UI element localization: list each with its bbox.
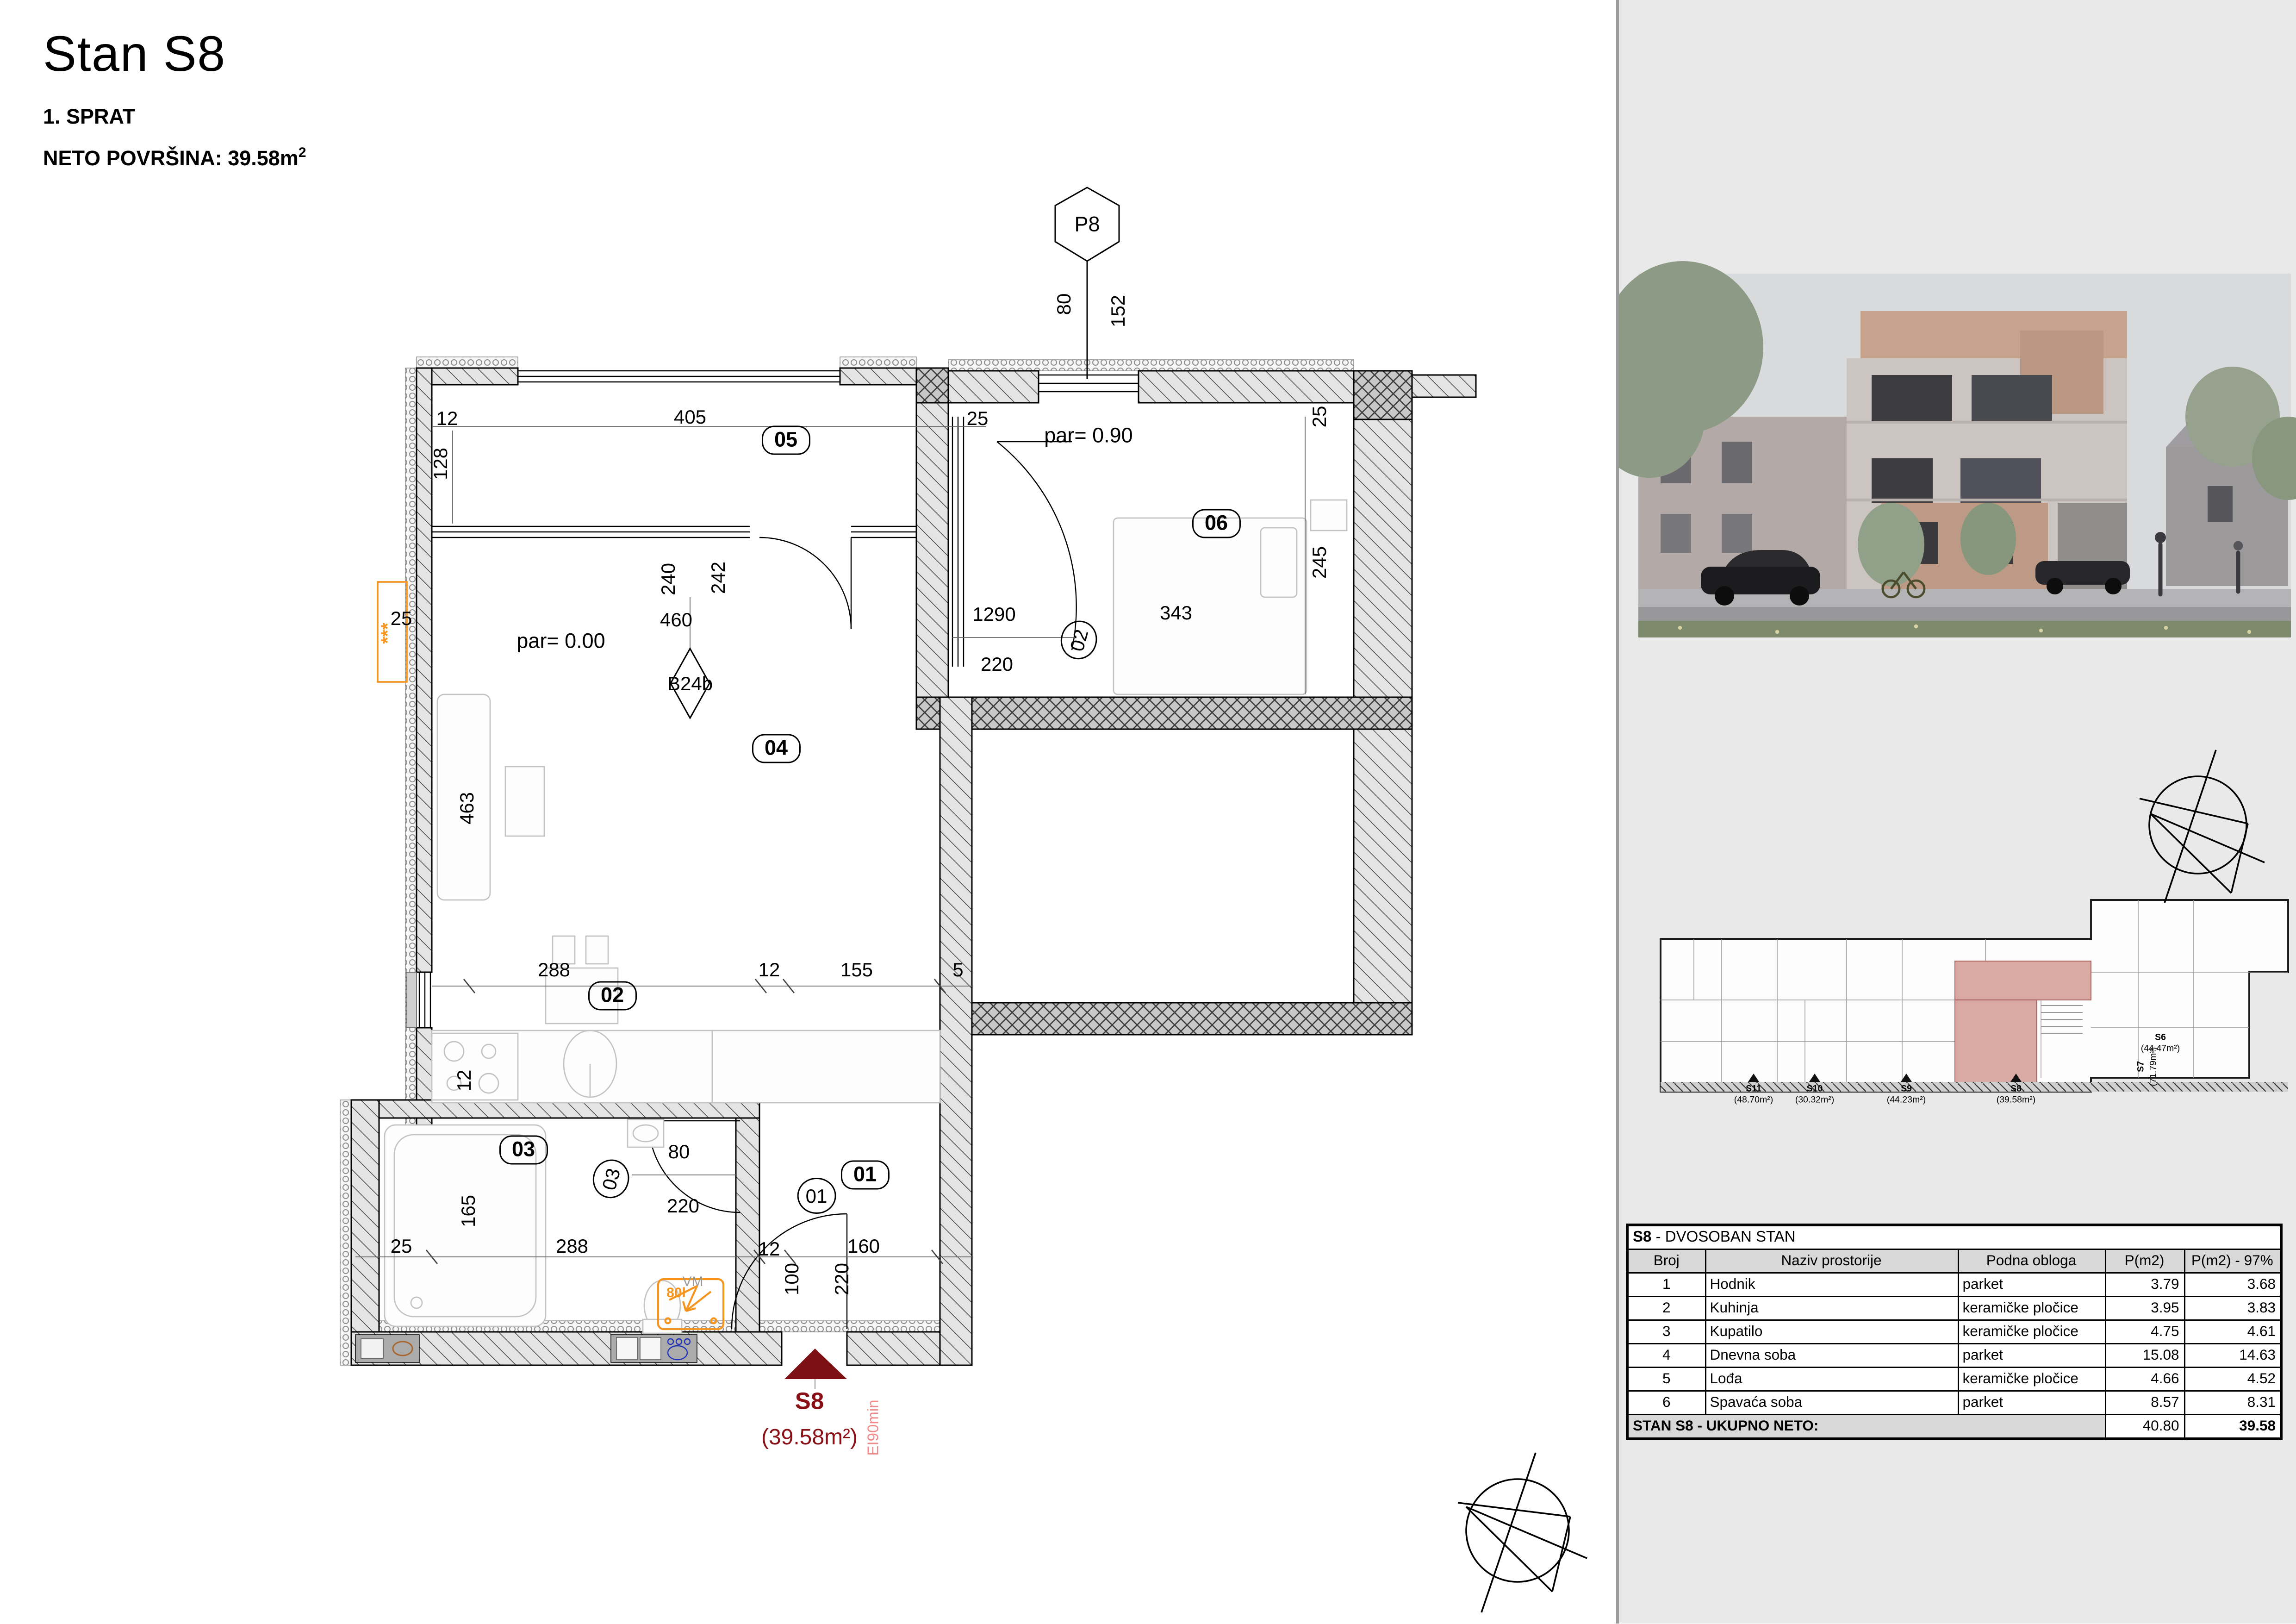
plan-label: S10 [1807,1086,1823,1095]
plan-label: par= 0.90 [1044,426,1132,447]
plan-label: 405 [674,407,706,426]
plan-label: S8 [795,1390,824,1413]
plan-label: VM [683,1276,703,1290]
room-tag: 04 [752,734,800,763]
plan-label: 288 [538,960,570,979]
plan-label: 242 [708,562,728,594]
plan-label: par= 0.00 [516,631,605,652]
plan-label: (44.23m²) [1887,1097,1926,1106]
plan-label: 460 [660,610,692,629]
plan-label: S7 [2138,1061,2147,1072]
plan-label: 12 [436,408,458,428]
plan-label: (39.58m²) [1997,1097,2036,1106]
plan-label: S8 [2010,1086,2022,1095]
plan-label: 463 [457,792,476,824]
room-tag: 03 [499,1136,548,1165]
plan-label: 25 [967,408,989,428]
room-tag: 02 [1057,617,1101,663]
plan-label: *** [379,623,397,644]
plan-label: 245 [1309,546,1329,579]
plan-label: 1290 [972,604,1015,624]
plan-label: 165 [458,1195,478,1227]
room-tag: 05 [762,426,810,455]
panel-divider [1616,0,1619,1624]
room-tag: 06 [1192,509,1240,538]
plan-label: 160 [847,1236,880,1255]
plan-label: 343 [1160,603,1192,622]
plan-label: S6 [2155,1034,2166,1043]
plan-label: 12 [759,1239,780,1258]
room-tag: 02 [588,981,636,1011]
plan-label: 220 [981,654,1013,674]
plan-label: (48.70m²) [1734,1097,1773,1106]
plan-label: (44.47m²) [2141,1045,2180,1055]
plan-label: (30.32m²) [1795,1097,1835,1106]
plan-label: EI90min [867,1399,883,1455]
plan-label: 80 [1054,294,1073,315]
plan-label: 128 [430,448,450,480]
plan-labels-layer: P880152121284050525par= 0.90250624534312… [0,0,2296,1624]
plan-label: 25 [391,1236,412,1255]
plan-label: 12 [454,1070,473,1092]
plan-label: (71.79m²) [2150,1047,2159,1087]
plan-label: 240 [658,563,678,595]
plan-label: 220 [832,1263,851,1295]
plan-label: 12 [759,960,780,979]
plan-label: 152 [1108,295,1127,327]
plan-label: 155 [840,960,873,979]
plan-label: (39.58m²) [761,1428,858,1450]
room-tag: 03 [589,1156,634,1202]
plan-label: 288 [556,1236,588,1255]
plan-label: P8 [1074,215,1100,236]
room-tag: 01 [841,1161,889,1190]
plan-label: S11 [1746,1086,1761,1095]
plan-label: 100 [782,1263,801,1295]
plan-label: 80 [668,1142,690,1161]
room-tag: 01 [797,1178,836,1214]
plan-label: 5 [952,960,963,979]
plan-label: 220 [667,1196,699,1215]
plan-label: 25 [1309,406,1329,428]
plan-label: B24b [667,674,713,693]
plan-label: S9 [1901,1086,1912,1095]
sheet: Stan S8 1. SPRAT NETO POVRŠINA: 39.58m2 [0,0,2296,1624]
